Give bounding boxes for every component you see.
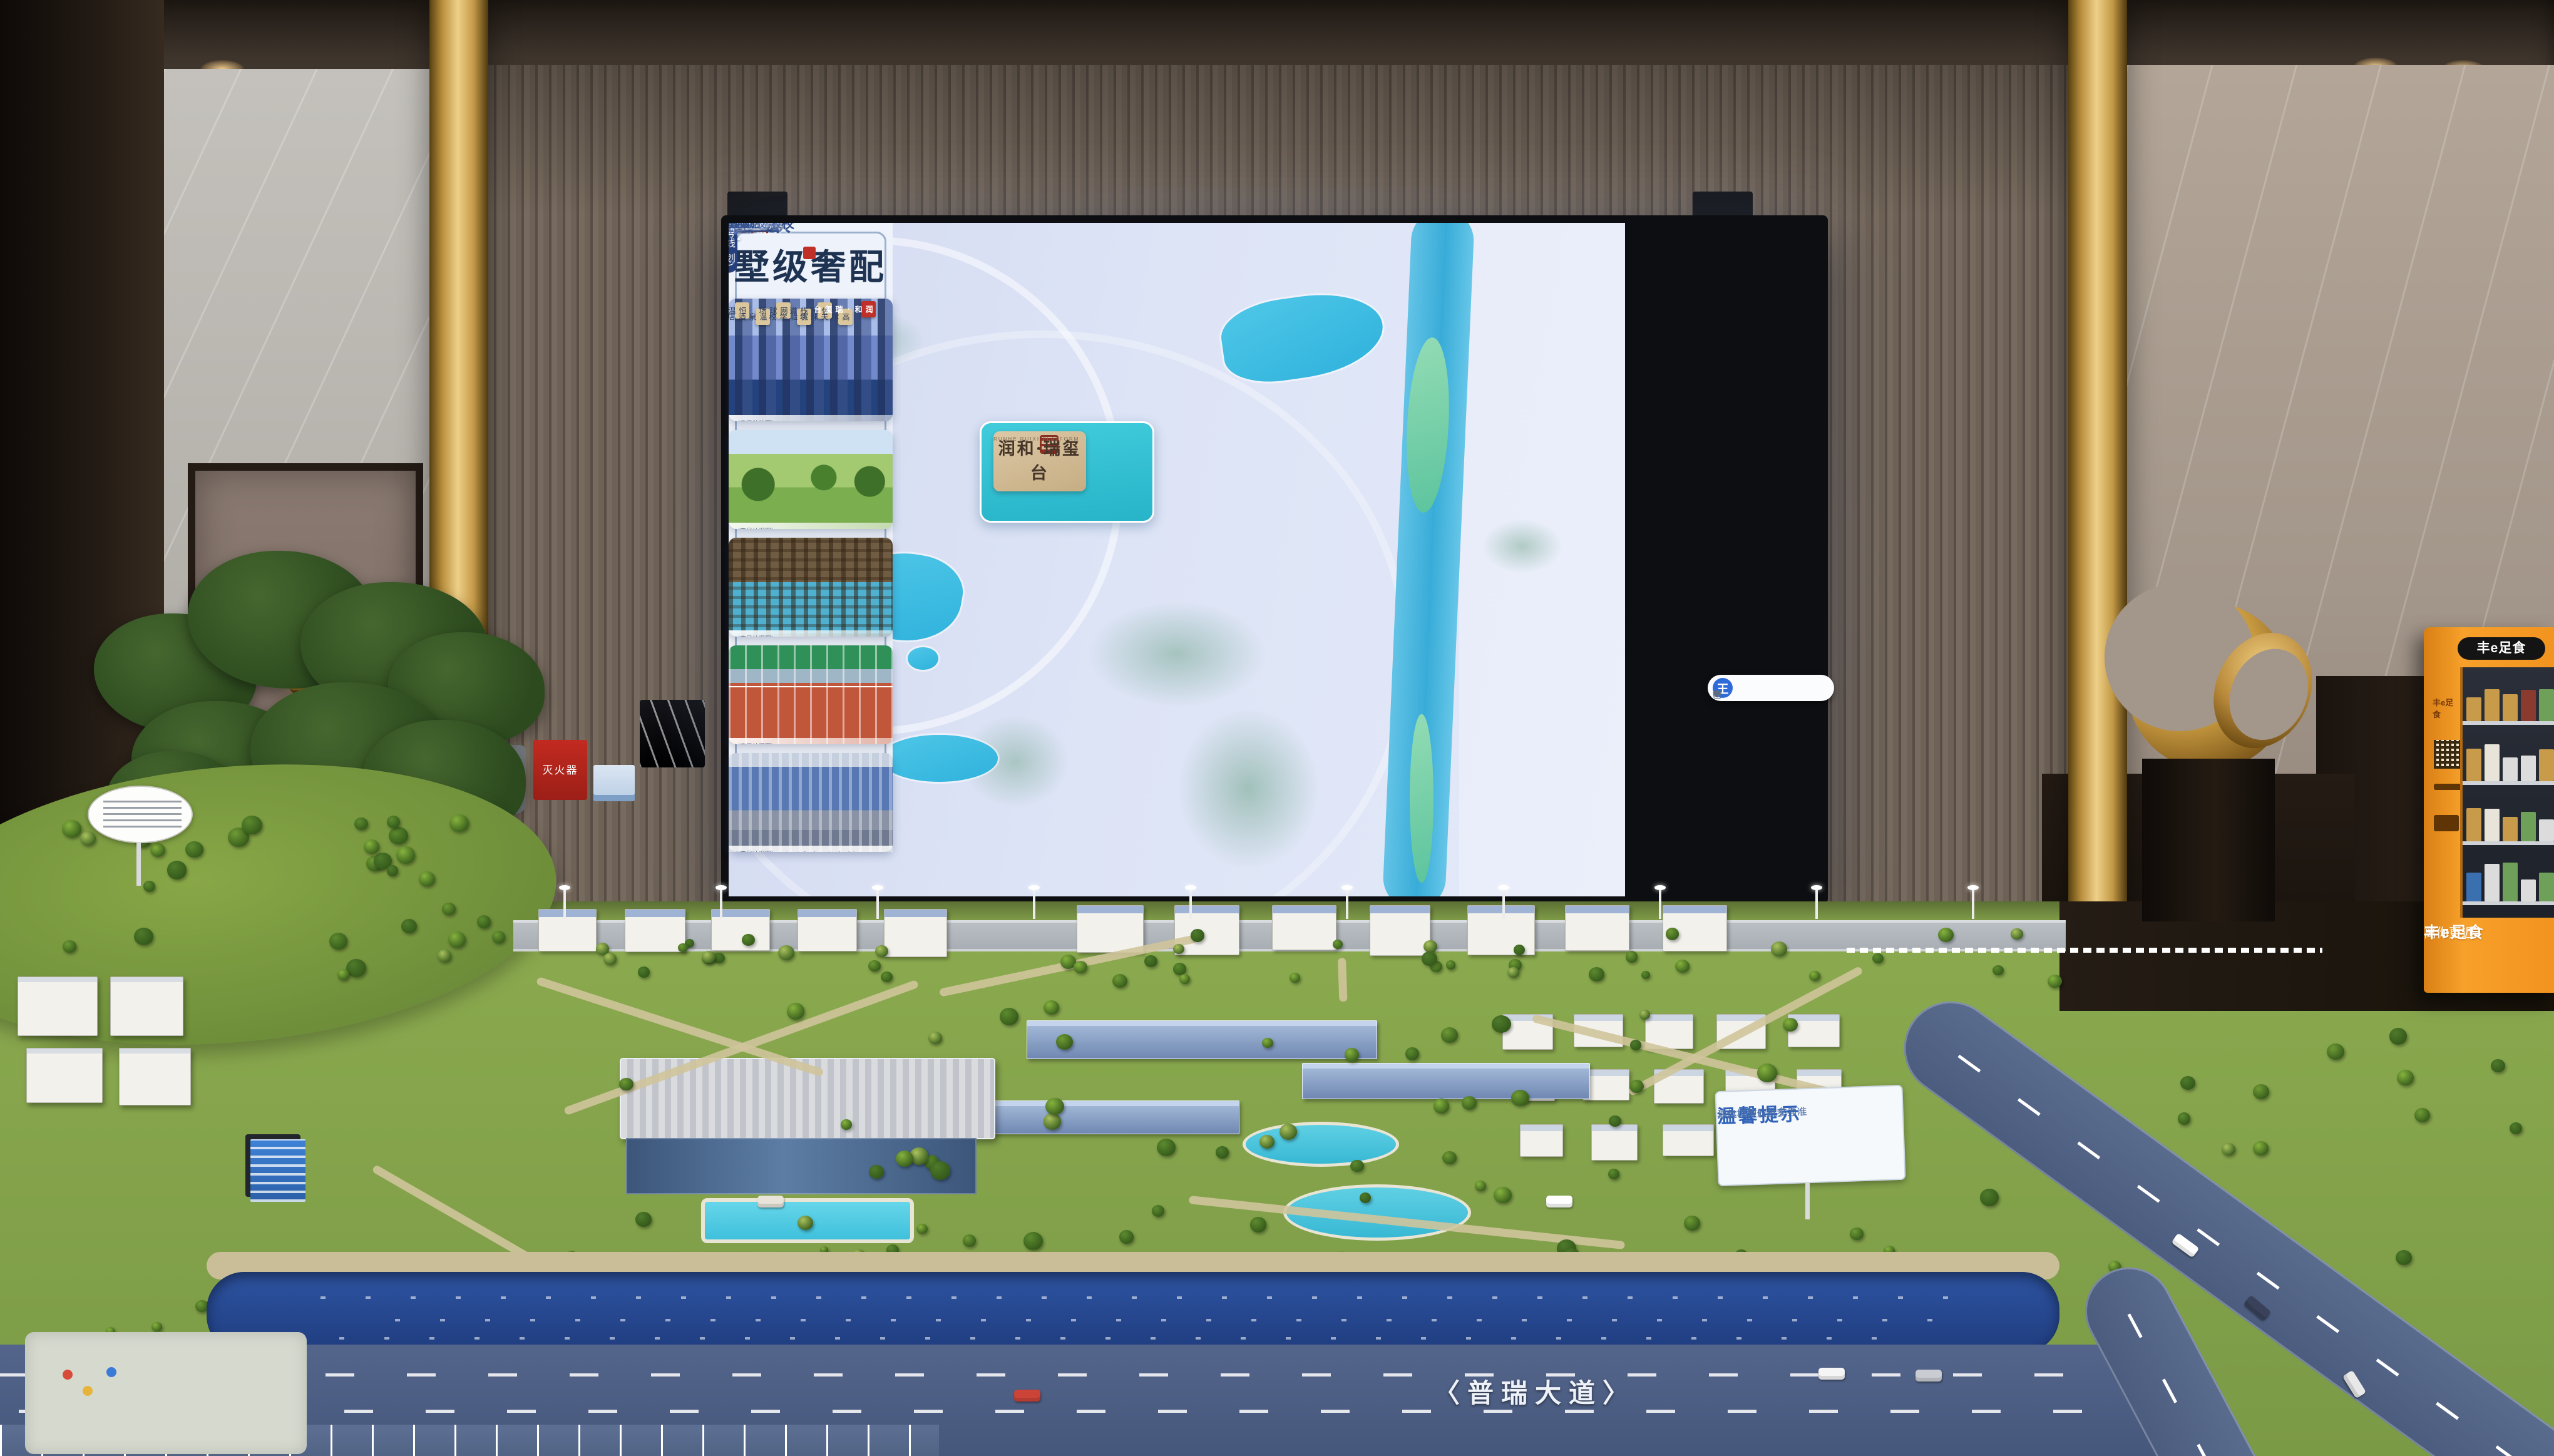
yuelu-mountain xyxy=(1177,708,1320,869)
photo-project-aerial: 恒温泳池温泉酒店网球场实验学校休闲栈道高尔夫球场润和·瑞玺台 项目实景配套（实景… xyxy=(729,299,893,421)
road-name-marking: 〈普瑞大道〉 xyxy=(1433,1372,1636,1410)
meixi-lake xyxy=(881,735,997,782)
amenity-panel: 墅级奢配 恒温泳池温泉酒店网球场实验学校休闲栈道高尔夫球场润和·瑞玺台 项目实景… xyxy=(729,223,893,852)
model-led-totem xyxy=(245,1134,300,1197)
model-white-fence xyxy=(1847,948,2322,953)
screen-annotation-toolbar: 王 ✚●✎✂▢⚑⚙ xyxy=(1708,675,1834,701)
vending-slot xyxy=(2434,815,2459,831)
xiufengshan xyxy=(1482,519,1562,573)
vending-brand-header: 丰e足食 xyxy=(2458,637,2545,660)
clubhouse-glass xyxy=(626,1138,977,1194)
model-info-sign xyxy=(88,786,193,843)
brochure-stack xyxy=(593,765,635,801)
screen-mount-right xyxy=(1693,192,1753,217)
vending-machine[interactable]: 丰e足食 丰e足食 丰e足食 离你更近 xyxy=(2424,627,2554,993)
gold-pillar-right xyxy=(2068,0,2127,977)
vending-qr-code[interactable] xyxy=(2434,740,2463,769)
sign-pole xyxy=(1805,1182,1810,1219)
panel-title: 墅级奢配 xyxy=(729,239,893,290)
vending-glass-door xyxy=(2460,667,2554,918)
project-logo-card: 润和·瑞玺台 RUNHE RUIXI PLATFORM xyxy=(993,431,1086,491)
project-name: 润和·瑞玺台 xyxy=(993,435,1086,484)
map-label: 梅溪湖西站 xyxy=(729,223,760,230)
photo-school: 麓山国际望城实验学校（实景拍摄图） xyxy=(729,753,893,852)
photo-heated-pool: 恒温游泳池（实景拍摄图） xyxy=(729,538,893,637)
scale-model: 〈普瑞大道〉 温馨提示 沙盘模型仅供参考 具体以政府批文为准 xyxy=(0,901,2554,1456)
black-marble-cube xyxy=(640,700,705,767)
red-seal-icon xyxy=(803,247,816,259)
photo-golf-course: 高尔夫球场（实景拍摄图） xyxy=(729,430,893,529)
model-notice-board: 温馨提示 沙盘模型仅供参考 具体以政府批文为准 xyxy=(1715,1085,1905,1186)
screen-mount-left xyxy=(727,192,787,217)
fire-extinguisher-box: 灭火器 xyxy=(533,740,587,800)
led-screen: 润和·瑞玺台 RUNHE RUIXI PLATFORM 经开区商圈高铁西中心滨水… xyxy=(721,215,1828,904)
project-parcel: 润和·瑞玺台 RUNHE RUIXI PLATFORM xyxy=(980,421,1154,522)
dazehu-lake xyxy=(1217,286,1388,389)
toolbar-icon[interactable]: ⚙ xyxy=(1713,688,1721,700)
gushan-mountain xyxy=(1087,600,1266,708)
project-name-en: RUNHE RUIXI PLATFORM xyxy=(993,436,1079,442)
vending-side-brand: 丰e足食 xyxy=(2433,696,2460,720)
photo-clay-tennis: 红土网球场（实景拍摄图） xyxy=(729,645,893,744)
sculpture-plinth xyxy=(2142,759,2275,921)
ribbon-tag-project: 润和·瑞玺台 xyxy=(861,301,876,317)
model-canal xyxy=(207,1272,2059,1353)
sales-gallery-scene: 灭火器 润和·瑞玺台 RUN xyxy=(0,0,2554,1456)
orange-isle xyxy=(1410,714,1433,883)
sign-pole xyxy=(136,842,141,886)
model-plaza xyxy=(25,1332,307,1454)
